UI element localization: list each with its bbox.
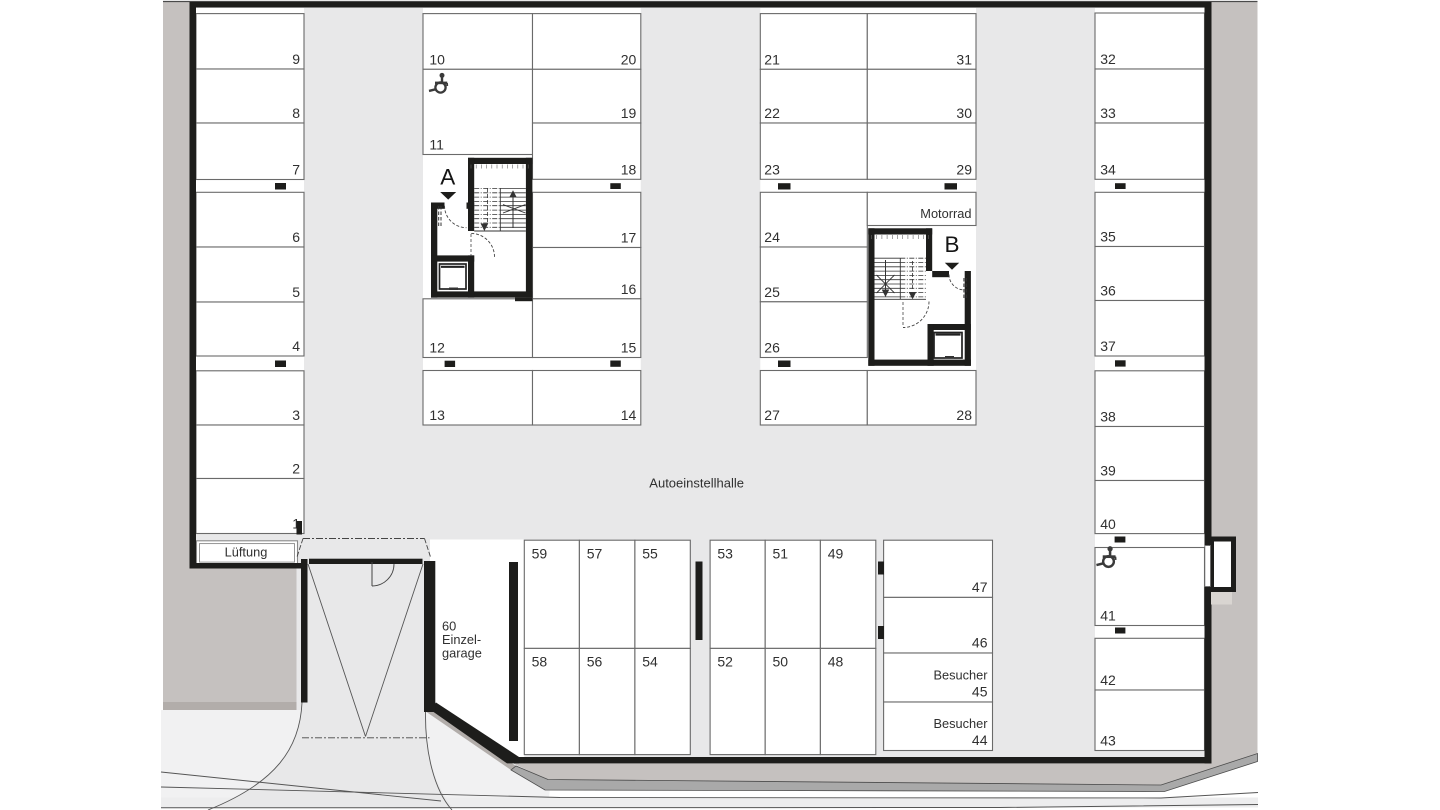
svg-text:33: 33 bbox=[1100, 105, 1116, 121]
svg-text:37: 37 bbox=[1100, 338, 1116, 354]
svg-text:56: 56 bbox=[587, 653, 603, 669]
svg-text:Besucher: Besucher bbox=[933, 668, 988, 683]
svg-text:13: 13 bbox=[429, 407, 445, 423]
svg-text:30: 30 bbox=[956, 105, 972, 121]
svg-text:58: 58 bbox=[532, 653, 548, 669]
svg-text:44: 44 bbox=[972, 732, 988, 748]
svg-text:47: 47 bbox=[972, 579, 988, 595]
svg-text:22: 22 bbox=[764, 105, 780, 121]
svg-text:Besucher: Besucher bbox=[933, 716, 988, 731]
svg-text:45: 45 bbox=[972, 684, 988, 700]
svg-text:48: 48 bbox=[828, 653, 844, 669]
svg-text:6: 6 bbox=[292, 229, 300, 245]
svg-text:34: 34 bbox=[1100, 162, 1116, 178]
svg-text:28: 28 bbox=[956, 407, 972, 423]
svg-text:54: 54 bbox=[642, 653, 658, 669]
svg-text:17: 17 bbox=[621, 230, 637, 246]
svg-text:32: 32 bbox=[1100, 51, 1116, 67]
svg-text:23: 23 bbox=[764, 162, 780, 178]
svg-text:A: A bbox=[440, 165, 455, 190]
svg-text:11: 11 bbox=[429, 137, 444, 153]
svg-text:15: 15 bbox=[621, 340, 637, 356]
svg-text:garage: garage bbox=[442, 646, 482, 661]
svg-text:21: 21 bbox=[764, 52, 780, 68]
svg-text:9: 9 bbox=[292, 51, 300, 67]
svg-text:31: 31 bbox=[956, 52, 972, 68]
svg-text:40: 40 bbox=[1100, 516, 1116, 532]
svg-text:20: 20 bbox=[621, 52, 637, 68]
svg-text:26: 26 bbox=[764, 340, 780, 356]
svg-text:10: 10 bbox=[429, 52, 445, 68]
svg-text:24: 24 bbox=[764, 229, 780, 245]
svg-text:7: 7 bbox=[292, 162, 300, 178]
svg-text:4: 4 bbox=[292, 338, 300, 354]
svg-text:27: 27 bbox=[764, 407, 780, 423]
svg-text:43: 43 bbox=[1100, 733, 1116, 749]
svg-text:Motorrad: Motorrad bbox=[920, 206, 971, 221]
svg-text:18: 18 bbox=[621, 162, 637, 178]
svg-text:52: 52 bbox=[717, 653, 733, 669]
svg-text:55: 55 bbox=[642, 545, 658, 561]
svg-text:8: 8 bbox=[292, 105, 300, 121]
svg-text:19: 19 bbox=[621, 105, 637, 121]
svg-text:3: 3 bbox=[292, 407, 300, 423]
svg-text:B: B bbox=[944, 232, 959, 257]
svg-text:12: 12 bbox=[429, 340, 445, 356]
svg-text:16: 16 bbox=[621, 281, 637, 297]
svg-text:41: 41 bbox=[1100, 608, 1116, 624]
svg-text:2: 2 bbox=[292, 461, 300, 477]
svg-text:46: 46 bbox=[972, 635, 988, 651]
svg-text:Lüftung: Lüftung bbox=[225, 545, 268, 560]
svg-text:38: 38 bbox=[1100, 409, 1116, 425]
svg-text:25: 25 bbox=[764, 284, 780, 300]
svg-text:36: 36 bbox=[1100, 283, 1116, 299]
svg-text:59: 59 bbox=[532, 545, 548, 561]
svg-text:49: 49 bbox=[828, 545, 844, 561]
svg-text:39: 39 bbox=[1100, 463, 1116, 479]
svg-text:35: 35 bbox=[1100, 229, 1116, 245]
svg-text:51: 51 bbox=[773, 545, 789, 561]
svg-text:Autoeinstellhalle: Autoeinstellhalle bbox=[649, 476, 744, 491]
svg-text:29: 29 bbox=[956, 162, 972, 178]
svg-text:14: 14 bbox=[621, 407, 637, 423]
svg-text:5: 5 bbox=[292, 284, 300, 300]
svg-text:42: 42 bbox=[1100, 672, 1116, 688]
svg-text:57: 57 bbox=[587, 545, 603, 561]
svg-text:53: 53 bbox=[717, 545, 733, 561]
svg-text:50: 50 bbox=[773, 653, 789, 669]
